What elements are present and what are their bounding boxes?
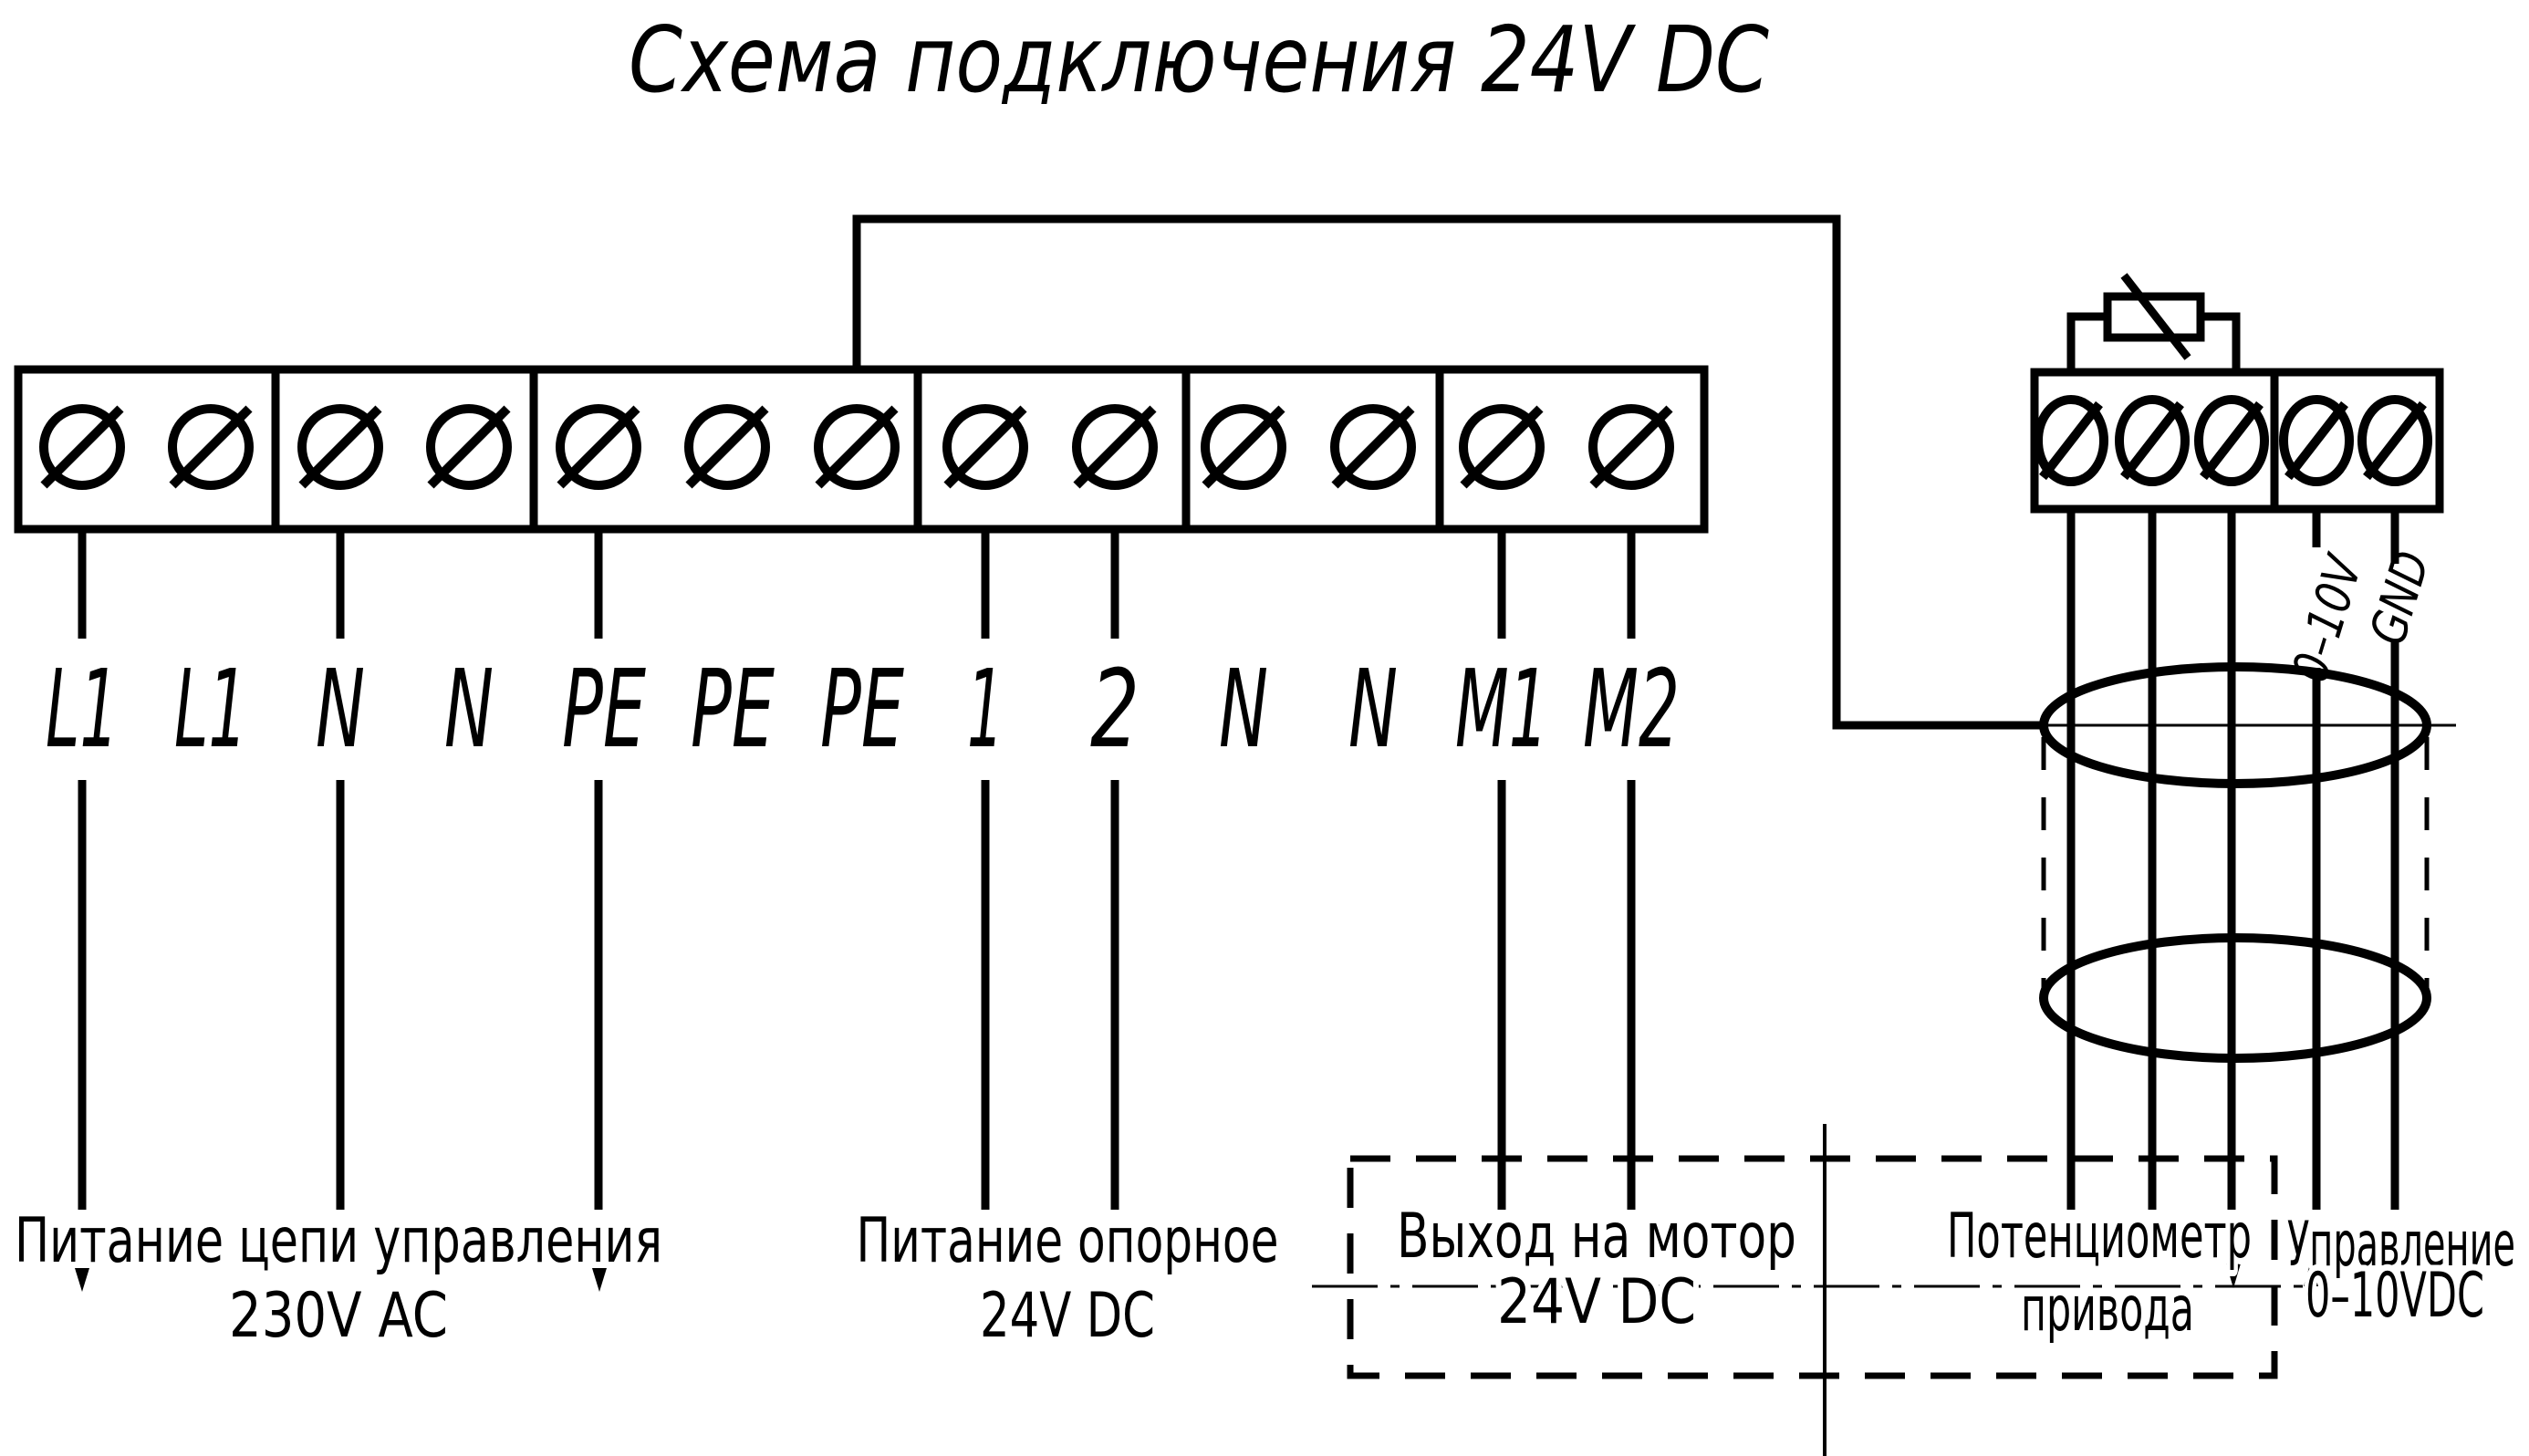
- terminal-label: M2: [1583, 646, 1680, 772]
- terminal-label: PE: [820, 646, 904, 772]
- caption-control: Управление 0–10VDC: [2287, 1209, 2515, 1332]
- diagram-title: Схема подключения 24V DC: [629, 6, 1769, 113]
- main-terminal-block: [18, 369, 1704, 529]
- caption-line: привода: [2021, 1274, 2194, 1346]
- terminal-labels: L1 L1 N N PE PE PE 1 2 N N M1 M2: [46, 646, 1680, 772]
- caption-line: 230V AC: [229, 1280, 448, 1352]
- terminal-label: N: [316, 646, 365, 772]
- resistor-leg: [2201, 317, 2236, 374]
- terminal-label: M1: [1455, 646, 1548, 772]
- terminal-label: N: [1348, 646, 1398, 772]
- signal-label-gnd: GND: [2358, 545, 2441, 651]
- caption-line: 0–10VDC: [2305, 1260, 2484, 1332]
- caption-line: Потенциометр: [1947, 1201, 2252, 1273]
- wiring-diagram-page: Схема подключения 24V DC: [0, 0, 2529, 1456]
- resistor-leg: [2071, 317, 2107, 374]
- terminal-label: 2: [1090, 646, 1140, 772]
- actuator-terminal-block: [2035, 276, 2440, 509]
- caption-line: Питание цепи управления: [15, 1205, 662, 1277]
- caption-mains: Питание цепи управления 230V AC: [15, 1205, 662, 1352]
- caption-potentiometer: Потенциометр привода: [1947, 1201, 2252, 1346]
- caption-line: 24V DC: [1497, 1266, 1696, 1338]
- terminal-label: L1: [46, 646, 119, 772]
- caption-line: Питание опорное: [857, 1205, 1279, 1277]
- drop-wires: [82, 780, 1631, 1210]
- terminal-label: PE: [562, 646, 646, 772]
- caption-line: 24V DC: [980, 1280, 1155, 1352]
- wiring-diagram: Схема подключения 24V DC: [0, 0, 2529, 1456]
- terminal-label: N: [444, 646, 494, 772]
- terminal-label: N: [1219, 646, 1268, 772]
- terminal-label: L1: [174, 646, 247, 772]
- terminal-label: PE: [691, 646, 775, 772]
- terminal-stub-wires: [82, 529, 1631, 639]
- terminal-label: 1: [967, 646, 1004, 772]
- caption-line: Выход на мотор: [1397, 1201, 1796, 1273]
- caption-motor-output: Выход на мотор 24V DC: [1397, 1201, 1796, 1338]
- caption-reference: Питание опорное 24V DC: [857, 1205, 1279, 1352]
- terminal-block-body: [18, 369, 1704, 529]
